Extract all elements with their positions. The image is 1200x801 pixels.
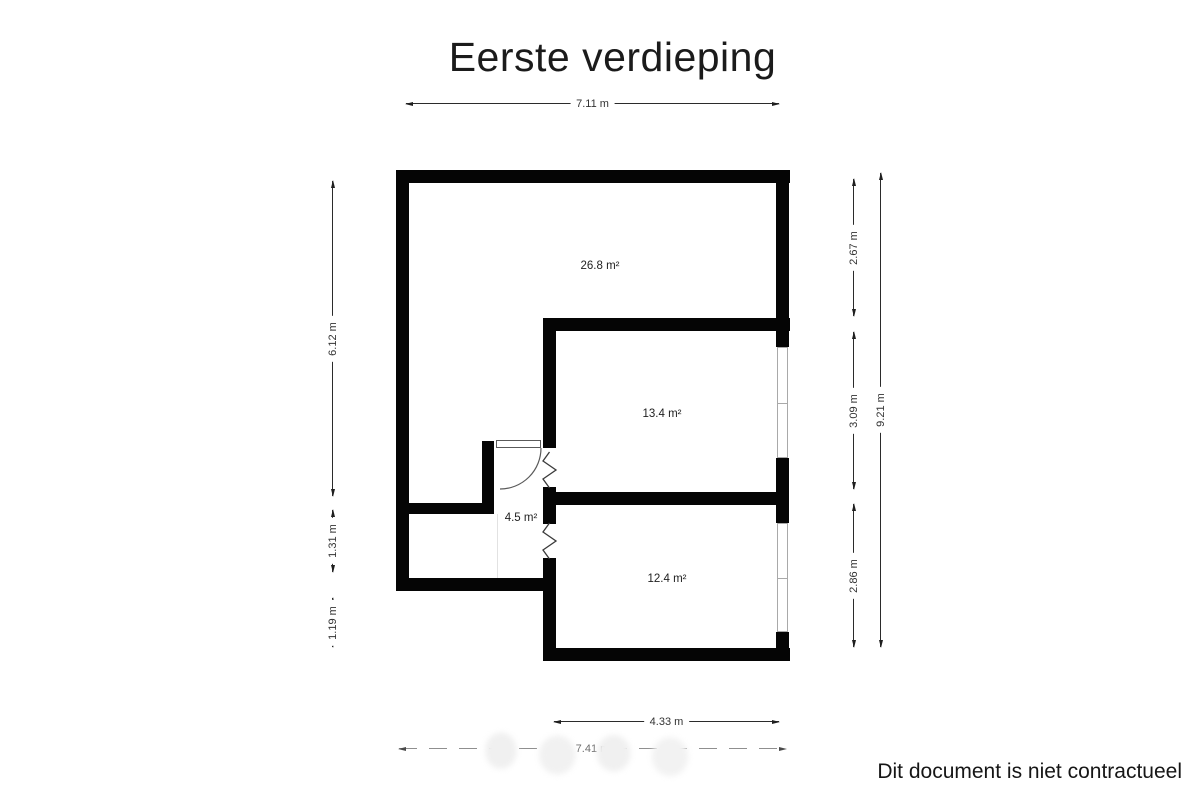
dimension-left-1-31: 1.31 m xyxy=(327,509,339,573)
dimension-right-2-67: 2.67 m xyxy=(848,178,860,317)
opening-break-upper-icon xyxy=(543,452,556,488)
wall-outer-left xyxy=(396,170,409,591)
page-title: Eerste verdieping xyxy=(410,34,815,81)
wall-center-lower xyxy=(543,558,556,661)
door-swing-arc xyxy=(500,448,541,489)
opening-break-lower-icon xyxy=(543,523,556,559)
room-area-label-13-4: 13.4 m² xyxy=(643,408,682,420)
dimension-right-total-9-21: 9.21 m xyxy=(875,172,887,648)
door-leaf xyxy=(496,440,541,448)
wall-interior-26-13 xyxy=(543,318,790,331)
wall-interior-13-12 xyxy=(556,492,776,505)
watermark xyxy=(468,712,703,798)
disclaimer-text: Dit document is niet contractueel xyxy=(877,760,1182,784)
wall-left-section-bottom xyxy=(396,578,556,591)
dimension-right-2-86: 2.86 m xyxy=(848,503,860,648)
window-middle-room xyxy=(777,347,788,458)
wall-outer-right-middle xyxy=(776,458,789,523)
window-mullion xyxy=(777,403,788,404)
wall-center-upper xyxy=(543,318,556,448)
plan-symbols-overlay xyxy=(0,0,1200,801)
dimension-right-3-09: 3.09 m xyxy=(848,331,860,490)
floorplan-page: Eerste verdieping 26.8 m² 13.4 m² 4.5 m²… xyxy=(0,0,1200,801)
wall-center-middle xyxy=(543,487,556,524)
room-area-label-26-8: 26.8 m² xyxy=(581,260,620,272)
hallway-boundary-line xyxy=(497,514,498,578)
wall-outer-right-lower xyxy=(776,632,789,661)
wall-stub-door xyxy=(482,441,494,503)
wall-interior-left xyxy=(396,503,494,514)
dimension-top-width: 7.11 m xyxy=(405,98,780,110)
dimension-left-1-19: 1.19 m xyxy=(327,597,339,648)
wall-outer-bottom xyxy=(543,648,790,661)
room-area-label-4-5: 4.5 m² xyxy=(505,512,538,524)
wall-outer-top xyxy=(396,170,790,183)
window-bottom-room xyxy=(777,523,788,632)
dimension-left-6-12: 6.12 m xyxy=(327,180,339,497)
window-mullion xyxy=(777,578,788,579)
room-area-label-12-4: 12.4 m² xyxy=(648,573,687,585)
